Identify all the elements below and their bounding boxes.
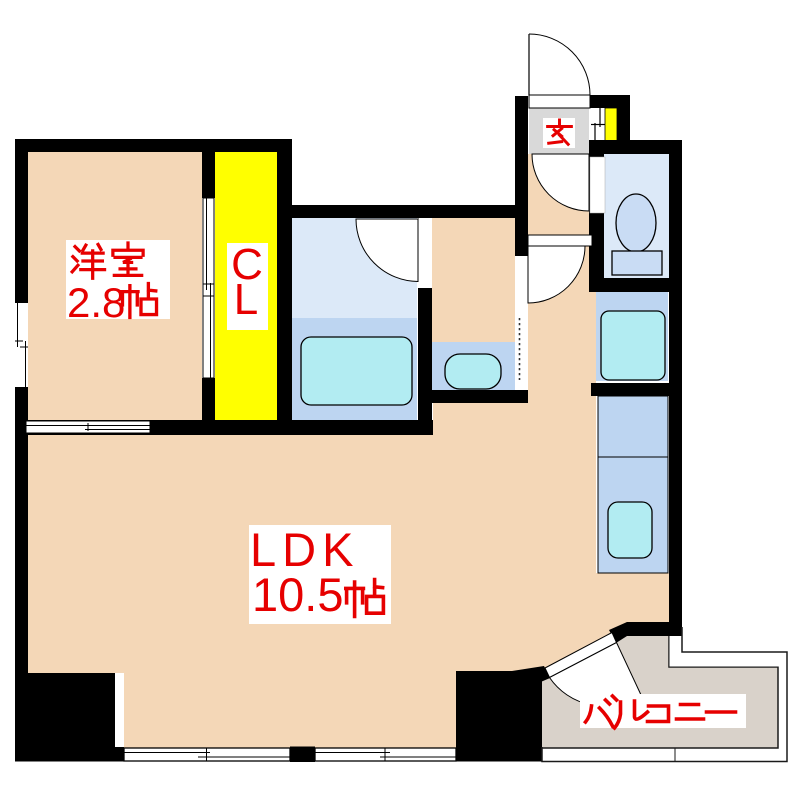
- svg-text:2.8: 2.8: [67, 279, 125, 326]
- svg-text:L: L: [234, 275, 258, 324]
- svg-text:10.5: 10.5: [252, 568, 343, 621]
